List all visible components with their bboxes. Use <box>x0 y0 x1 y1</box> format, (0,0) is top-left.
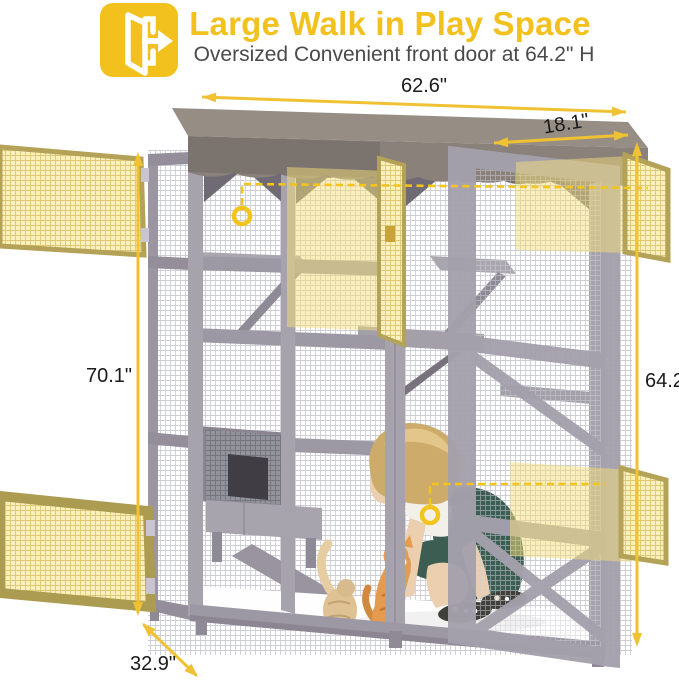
dim-bottom-depth-label: 32.9" <box>130 653 176 675</box>
open-window-panel-top-right <box>625 155 668 260</box>
open-side-door-top-left <box>0 147 149 255</box>
open-side-door-bottom-left <box>0 496 155 607</box>
dimension-top-width: 62.6" <box>202 75 626 117</box>
highlight-window-top-right <box>516 156 630 253</box>
highlight-window-bottom-right <box>510 462 632 562</box>
cat-hideout-box <box>204 428 284 506</box>
product-annotation-image: Large Walk in Play Space Oversized Conve… <box>0 0 679 684</box>
dim-left-height-label: 70.1" <box>86 365 132 387</box>
dim-top-width-label: 62.6" <box>401 75 447 97</box>
dim-right-door-height-label: 64.2" <box>645 370 679 392</box>
highlight-center-door <box>287 167 389 331</box>
catio-illustration: 62.6" 18.1" 70.1" 64.2" 32.9" <box>0 0 679 684</box>
open-window-panel-bottom-right <box>621 468 666 563</box>
